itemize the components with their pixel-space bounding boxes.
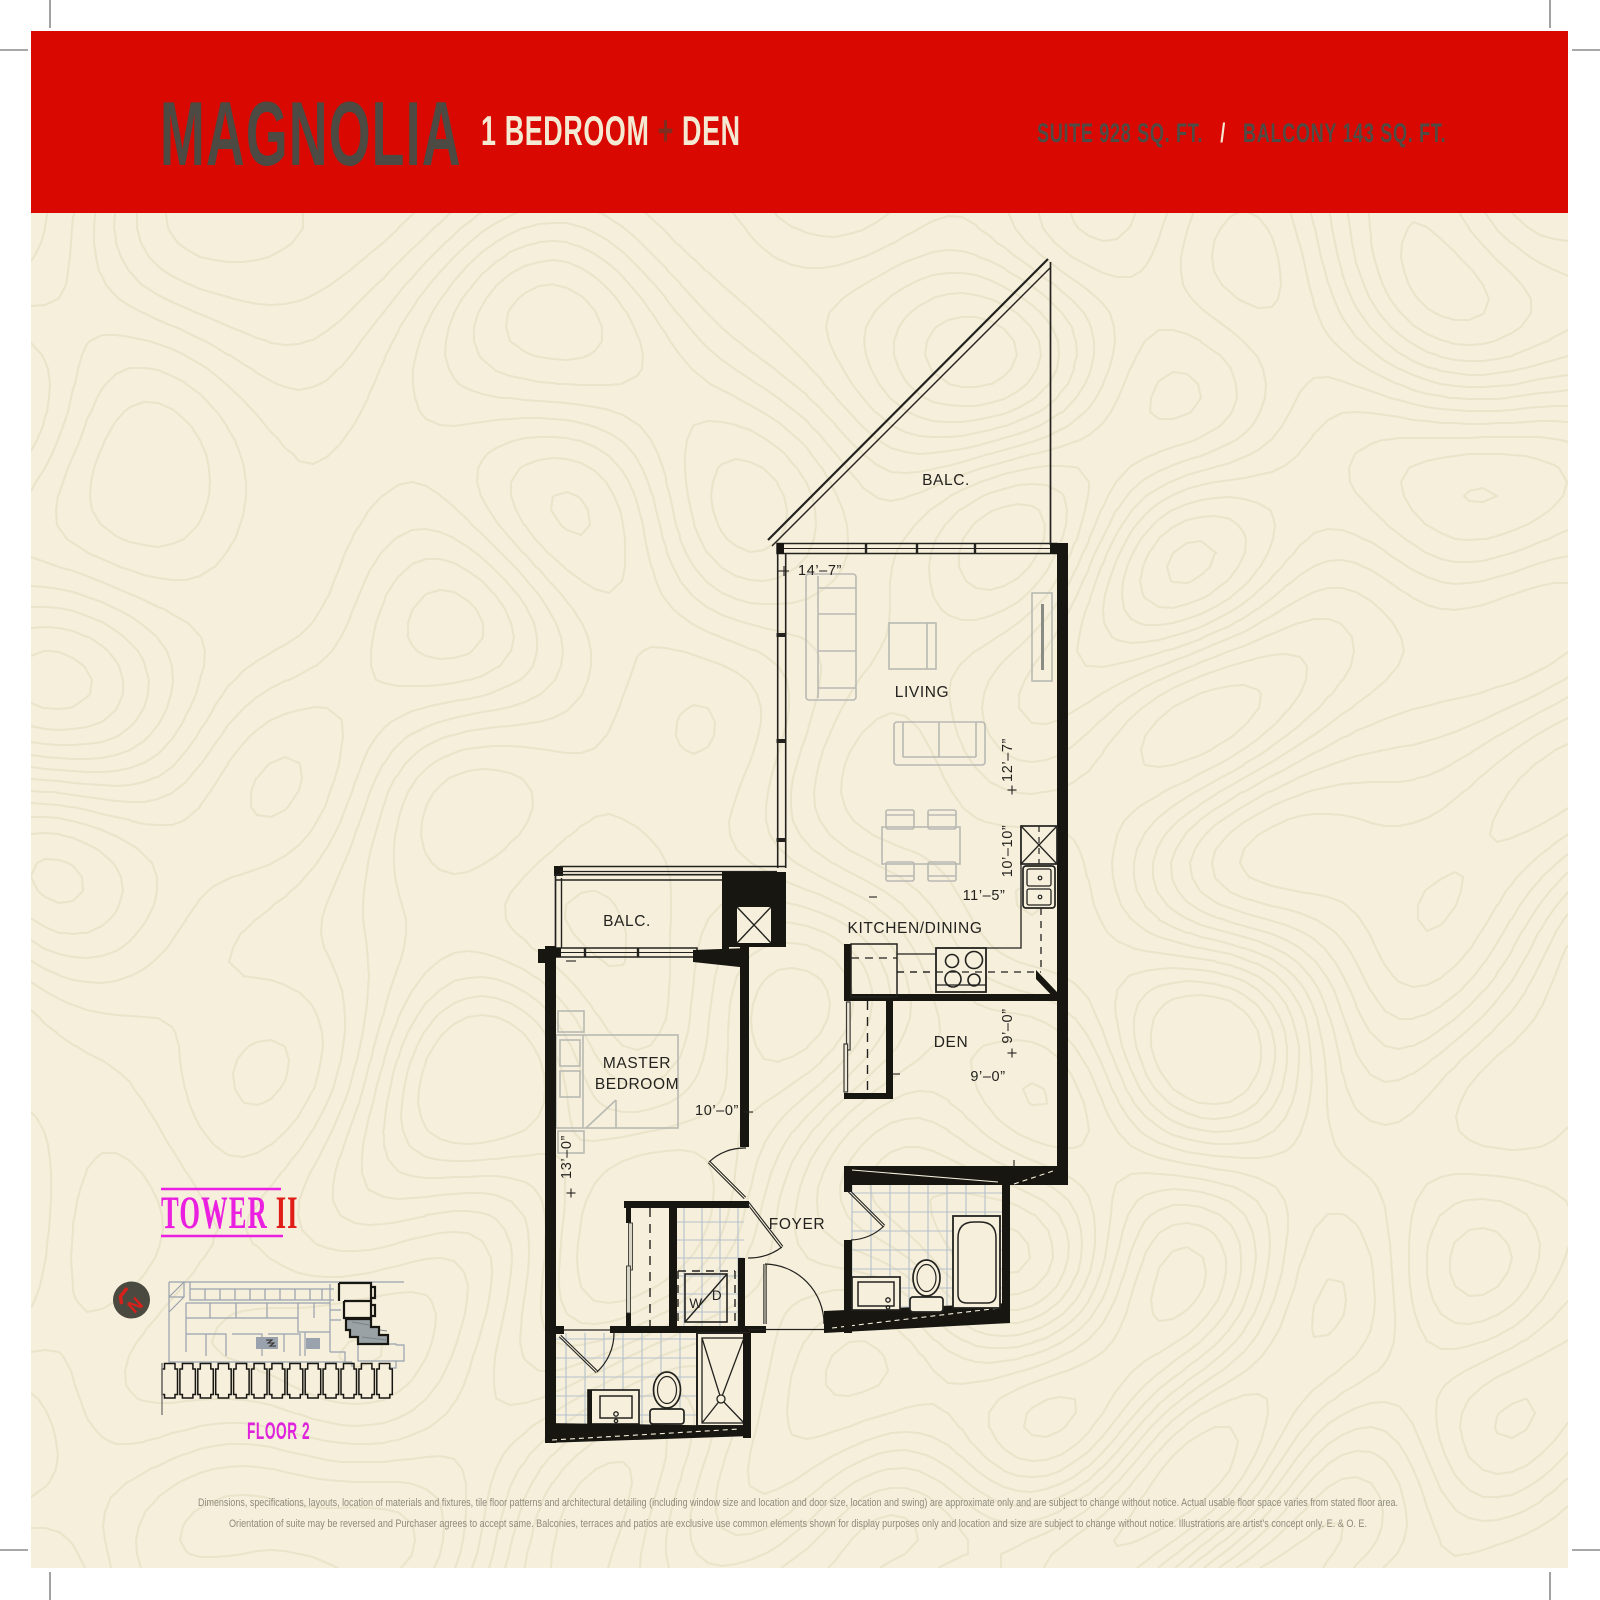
svg-text:KITCHEN/DINING: KITCHEN/DINING (848, 920, 983, 937)
svg-text:1 BEDROOM + DEN: 1 BEDROOM + DEN (481, 108, 741, 154)
svg-text:9’–0”: 9’–0” (1000, 1008, 1016, 1043)
svg-text:MAGNOLIA: MAGNOLIA (160, 82, 462, 184)
svg-text:TOWER II: TOWER II (161, 1187, 299, 1239)
svg-text:DEN: DEN (934, 1034, 969, 1051)
svg-text:13’–0”: 13’–0” (559, 1135, 575, 1179)
svg-text:FLOOR 2: FLOOR 2 (247, 1418, 310, 1445)
svg-text:BEDROOM: BEDROOM (595, 1076, 679, 1093)
svg-text:10’–10”: 10’–10” (1000, 825, 1016, 878)
svg-text:BALC.: BALC. (603, 913, 651, 930)
svg-text:12’–7”: 12’–7” (1000, 738, 1016, 782)
svg-text:10’–0”: 10’–0” (695, 1103, 739, 1119)
svg-text:14’–7”: 14’–7” (798, 563, 842, 579)
svg-text:LIVING: LIVING (895, 684, 949, 701)
svg-text:9’–0”: 9’–0” (970, 1069, 1005, 1085)
svg-text:Dimensions, specifications, la: Dimensions, specifications, layouts, loc… (198, 1497, 1398, 1509)
svg-text:W: W (689, 1296, 702, 1311)
svg-text:SUITE 928 SQ. FT. / BALCON: SUITE 928 SQ. FT. / BALCONY 143 SQ. FT. (1037, 117, 1446, 148)
svg-text:D: D (712, 1288, 722, 1303)
svg-text:FOYER: FOYER (769, 1216, 825, 1233)
svg-text:Orientation of suite may be re: Orientation of suite may be reversed and… (229, 1518, 1367, 1530)
svg-text:11’–5”: 11’–5” (963, 888, 1006, 904)
svg-text:BALC.: BALC. (922, 472, 970, 489)
svg-text:MASTER: MASTER (603, 1055, 671, 1072)
